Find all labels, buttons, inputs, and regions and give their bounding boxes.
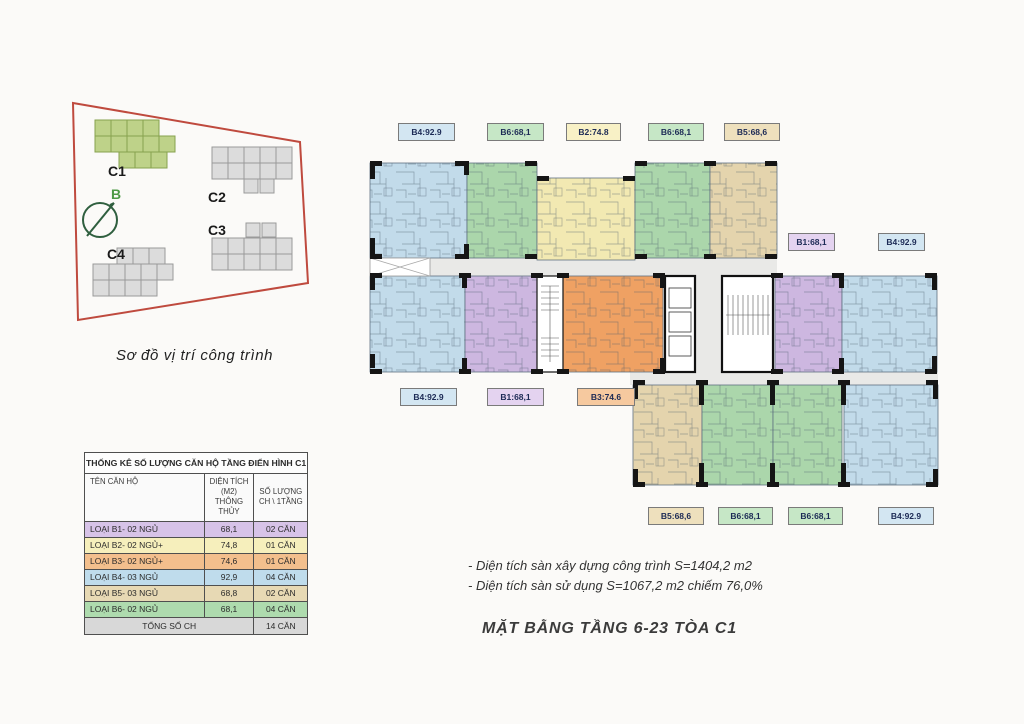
site-map-caption: Sơ đồ vị trí công trình [116, 347, 273, 364]
cell-qty: 02 CĂN [254, 585, 308, 601]
unit-b6-row1-left [467, 163, 537, 258]
unit-b4-row1 [370, 163, 467, 258]
table-row-b1: LOẠI B1- 02 NGỦ 68,1 02 CĂN [85, 521, 308, 537]
unit-area-label: B4:92.9 [878, 507, 934, 525]
col-header-area-line1: DIỆN TÍCH (M2) [207, 477, 252, 497]
note-built-area: - Diện tích sàn xây dựng công trình S=14… [468, 556, 763, 576]
cell-name: LOẠI B3- 02 NGỦ+ [85, 553, 205, 569]
total-label: TỔNG SỐ CH [85, 617, 254, 634]
corridor-core [695, 276, 722, 372]
table-row-b4: LOẠI B4- 03 NGỦ 92,9 04 CĂN [85, 569, 308, 585]
building-label-c3: C3 [208, 222, 226, 238]
unit-b4-row2-left [370, 276, 465, 372]
col-header-qty-line2: CH \ 1TẦNG [256, 497, 305, 507]
table-row-b3: LOẠI B3- 02 NGỦ+ 74,6 01 CĂN [85, 553, 308, 569]
cell-area: 74,8 [204, 537, 254, 553]
cell-qty: 02 CĂN [254, 521, 308, 537]
col-header-qty: SỐ LƯỢNG CH \ 1TẦNG [254, 474, 308, 522]
building-label-c4: C4 [107, 246, 125, 262]
unit-b3-row2 [563, 276, 663, 372]
unit-b6-row3-right [773, 385, 842, 485]
north-label: B [111, 186, 121, 202]
note-usable-area: - Diện tích sàn sử dụng S=1067,2 m2 chiế… [468, 576, 763, 596]
unit-b2-row1 [537, 178, 635, 260]
unit-b6-row1-right [635, 163, 710, 258]
unit-area-label: B4:92.9 [878, 233, 925, 251]
cell-name: LOẠI B2- 02 NGỦ+ [85, 537, 205, 553]
building-label-c1: C1 [108, 163, 126, 179]
floorplan-drawing [360, 140, 950, 500]
unit-area-label: B6:68,1 [487, 123, 544, 141]
stairwell-left [537, 276, 563, 372]
cell-qty: 01 CĂN [254, 537, 308, 553]
building-cluster-c1 [95, 120, 175, 168]
cell-qty: 04 CĂN [254, 569, 308, 585]
table-row-b5: LOẠI B5- 03 NGỦ 68,8 02 CĂN [85, 585, 308, 601]
cell-area: 92,9 [204, 569, 254, 585]
total-qty: 14 CĂN [254, 617, 308, 634]
cell-area: 68,1 [204, 521, 254, 537]
unit-b5-row3 [633, 385, 702, 485]
cell-name: LOẠI B4- 03 NGỦ [85, 569, 205, 585]
unit-area-label: B5:68,6 [724, 123, 780, 141]
page-title: MẶT BẰNG TẦNG 6-23 TÒA C1 [482, 620, 737, 638]
unit-b1-row2-left [465, 276, 537, 372]
unit-area-label: B6:68,1 [718, 507, 773, 525]
compass-icon [83, 203, 117, 237]
corridor-upper [370, 258, 777, 276]
elevator-core [665, 276, 695, 372]
cell-area: 74,6 [204, 553, 254, 569]
unit-area-label: B2:74.8 [566, 123, 621, 141]
site-location-diagram: C1 C2 C3 C4 B [62, 85, 322, 345]
unit-area-label: B4:92.9 [398, 123, 455, 141]
cell-qty: 04 CĂN [254, 601, 308, 617]
unit-b6-row3-left [702, 385, 773, 485]
cell-name: LOẠI B5- 03 NGỦ [85, 585, 205, 601]
unit-area-label: B3:74.6 [577, 388, 635, 406]
unit-b4-row2-right [842, 276, 937, 372]
unit-area-label: B5:68,6 [648, 507, 704, 525]
table-row-b6: LOẠI B6- 02 NGỦ 68,1 04 CĂN [85, 601, 308, 617]
corridor-lower [630, 372, 938, 385]
unit-area-label: B1:68,1 [788, 233, 835, 251]
building-cluster-c4 [93, 248, 173, 296]
unit-area-label: B4:92.9 [400, 388, 457, 406]
cell-name: LOẠI B6- 02 NGỦ [85, 601, 205, 617]
col-header-area-line2: THÔNG THỦY [207, 497, 252, 517]
area-notes: - Diện tích sàn xây dựng công trình S=14… [468, 556, 763, 596]
apartment-stats-table: THỐNG KÊ SỐ LƯỢNG CĂN HỘ TẦNG ĐIỂN HÌNH … [84, 452, 308, 635]
stairwell-core [722, 276, 773, 372]
unit-b4-row3 [844, 385, 938, 485]
table-row-total: TỔNG SỐ CH 14 CĂN [85, 617, 308, 634]
unit-b5-row1 [710, 163, 777, 258]
unit-b1-row2-right [775, 276, 842, 372]
col-header-name: TÊN CĂN HỘ [85, 474, 205, 522]
building-label-c2: C2 [208, 189, 226, 205]
cell-qty: 01 CĂN [254, 553, 308, 569]
unit-area-label: B6:68,1 [788, 507, 843, 525]
building-cluster-c2 [212, 147, 292, 193]
unit-area-label: B1:68,1 [487, 388, 544, 406]
cell-name: LOẠI B1- 02 NGỦ [85, 521, 205, 537]
cell-area: 68,8 [204, 585, 254, 601]
brochure-page: C1 C2 C3 C4 B Sơ đồ vị trí công trình TH… [0, 0, 1024, 724]
table-title: THỐNG KÊ SỐ LƯỢNG CĂN HỘ TẦNG ĐIỂN HÌNH … [85, 453, 308, 474]
unit-area-label: B6:68,1 [648, 123, 704, 141]
col-header-qty-line1: SỐ LƯỢNG [256, 487, 305, 497]
col-header-area: DIỆN TÍCH (M2) THÔNG THỦY [204, 474, 254, 522]
table-row-b2: LOẠI B2- 02 NGỦ+ 74,8 01 CĂN [85, 537, 308, 553]
cell-area: 68,1 [204, 601, 254, 617]
